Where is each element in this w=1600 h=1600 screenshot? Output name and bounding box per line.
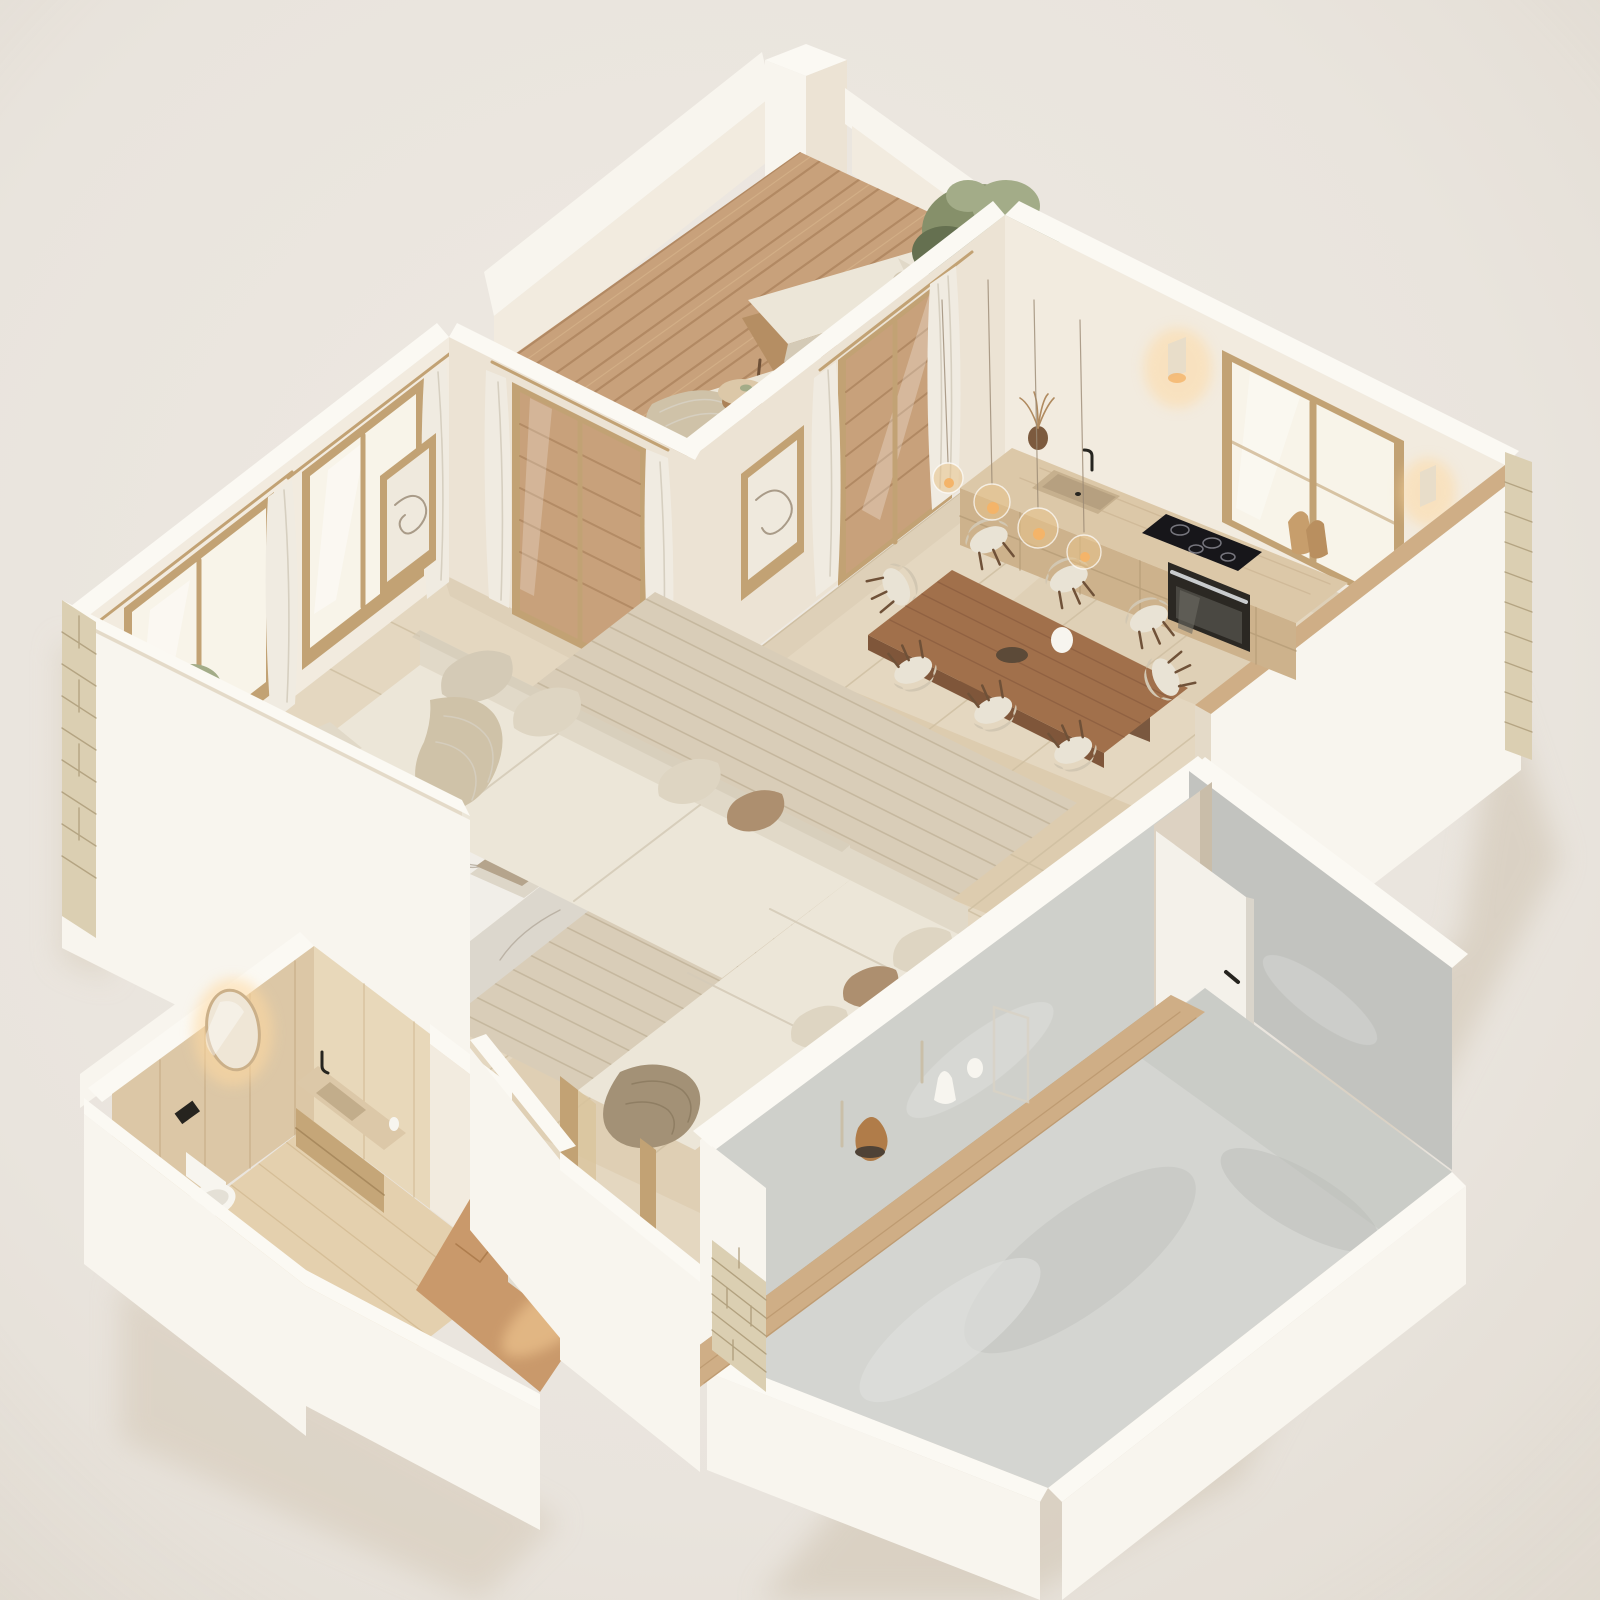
floorplan-render bbox=[0, 0, 1600, 1600]
vignette bbox=[0, 0, 1600, 1600]
